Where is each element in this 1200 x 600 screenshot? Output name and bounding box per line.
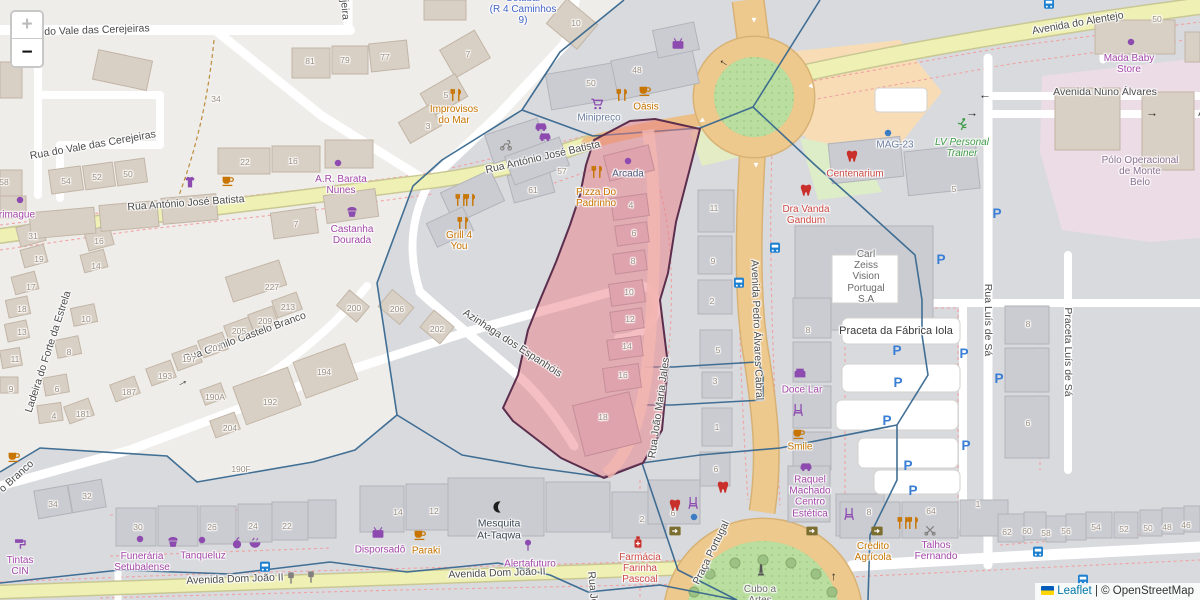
zoom-out-button[interactable]: − [12,39,42,66]
attribution-separator: | [1092,585,1101,597]
attribution-bar: Leaflet | © OpenStreetMap [1035,583,1200,600]
map-canvas[interactable]: P [0,0,1200,600]
ukraine-flag-icon [1041,586,1054,595]
leaflet-link[interactable]: Leaflet [1057,585,1092,597]
map-tiles: P [0,0,1200,600]
zoom-control: + − [10,10,44,68]
zoom-in-button[interactable]: + [12,12,42,39]
osm-copyright[interactable]: © OpenStreetMap [1101,585,1194,597]
